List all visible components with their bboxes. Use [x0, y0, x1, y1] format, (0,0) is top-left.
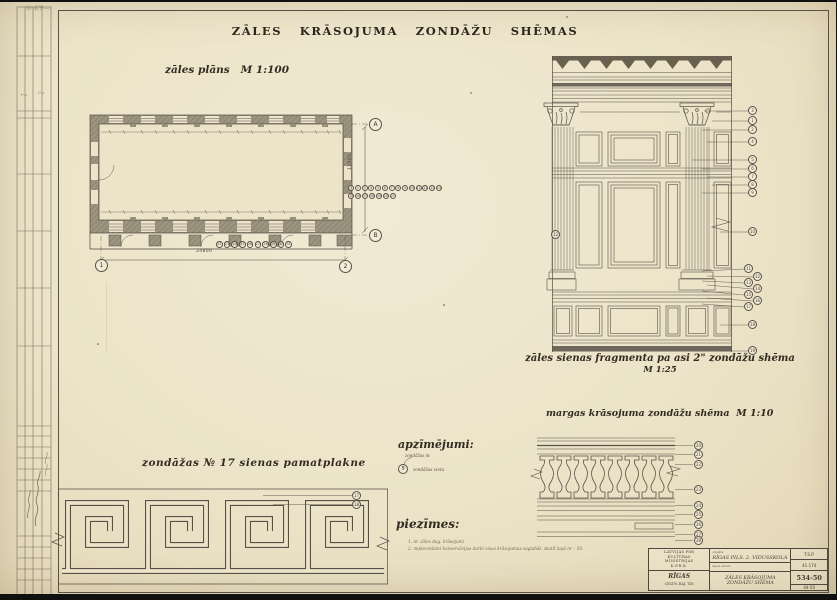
- callout-bubble: 14: [436, 185, 442, 191]
- sheet-title: ZĀLES KRĀSOJUMA ZONDĀŽU SHĒMAS: [210, 24, 600, 38]
- callout-bubble: 1: [748, 116, 757, 125]
- baluster: [557, 456, 571, 498]
- callout-bubble: 1: [348, 185, 354, 191]
- pilaster-shaft-left: [552, 127, 573, 270]
- callout-bubble: 30: [278, 241, 285, 248]
- plan-axis-marker-1: 1: [95, 259, 108, 272]
- callout-bubble: 12: [753, 272, 762, 281]
- callout-bubble: 18: [369, 193, 375, 199]
- signature-squiggle: [28, 490, 31, 518]
- callout-bubble: 2: [748, 125, 757, 134]
- title-block: LATVIJAS PSR KULTŪRAS MINISTRIJAS K.P.R.…: [648, 548, 828, 591]
- tall-panels: [576, 182, 731, 268]
- plinth-lines: [537, 516, 675, 537]
- callout-bubble: 17: [744, 302, 753, 311]
- callout-bubble: 22: [216, 241, 223, 248]
- screenshot-stage: № 4/9— ZĀLES KRĀSOJUMA ZONDĀŽU SHĒMAS zā…: [0, 0, 837, 600]
- callout-bubble: 12: [422, 185, 428, 191]
- callout-bubble: 28: [694, 536, 703, 545]
- callout-bubble: 21: [390, 193, 396, 199]
- callout-bubble: 10: [409, 185, 415, 191]
- note-item: 1. nr. zāles dug. krāsojumi: [408, 539, 464, 544]
- callout-bubble: 6: [382, 185, 388, 191]
- dentils: [556, 61, 723, 70]
- callout-bubble: 8: [395, 185, 401, 191]
- note-item: 2. nepieciešami konservācijas darbi visu…: [408, 546, 583, 551]
- elevation-caption: zāles sienas fragmenta pa asi 2" zondāžu…: [525, 353, 795, 375]
- title-block-object: objekts RĪGAS PILS. 2. VIDUSSKOLA: [710, 549, 790, 563]
- callout-bubble: 3: [362, 185, 368, 191]
- legend-sample-bubble: 5: [398, 464, 408, 474]
- plan-callout-row-2: 15161718192021: [348, 193, 396, 199]
- callout-bubble: 18: [748, 320, 757, 329]
- callout-bubble: 17: [362, 193, 368, 199]
- callout-bubble: 25: [239, 241, 246, 248]
- title-block-sheet-label: lapas saturs: [710, 563, 790, 572]
- plan-axis-marker-b: B: [369, 229, 382, 242]
- corinthian-capital-right: [680, 103, 714, 125]
- callout-bubble: 21: [694, 450, 703, 459]
- callout-bubble: 16: [753, 296, 762, 305]
- callout-bubble: 31: [285, 241, 292, 248]
- callout-bubble: 4: [368, 185, 374, 191]
- title-block-city: RĪGAS CELTN. RAJ. TIN: [649, 571, 709, 590]
- callout-bubble: 15: [744, 290, 753, 299]
- meander-band-drawing: [58, 485, 392, 591]
- callout-bubble: 20: [383, 193, 389, 199]
- callout-bubble: 20: [694, 441, 703, 450]
- callout-bubble: 13: [744, 278, 753, 287]
- plan-height-dimension: 12500: [348, 154, 353, 170]
- title-block-code3: 44-50: [791, 585, 827, 590]
- balustrade-caption: margas krāsojuma zondāžu shēma M 1:10: [546, 408, 773, 419]
- title-block-code1: T.S.P.: [791, 549, 827, 560]
- title-block-drawing-number: 534-50: [791, 571, 827, 585]
- callout-bubble: 14: [753, 284, 762, 293]
- plan-caption: zāles plāns M 1:100: [165, 64, 289, 76]
- meander-caption: zondāžas № 17 sienas pamatplakne: [142, 457, 366, 469]
- baluster: [625, 456, 639, 498]
- title-block-code2: 41-174: [791, 560, 827, 571]
- callout-bubble: 29: [270, 241, 277, 248]
- callout-bubble: 11: [744, 264, 753, 273]
- upper-panels: [576, 132, 731, 166]
- baluster: [591, 456, 605, 498]
- meander-outline: [62, 503, 384, 571]
- callout-bubble: 13: [429, 185, 435, 191]
- callout-bubble: 25: [694, 510, 703, 519]
- notes-heading: piezīmes:: [396, 517, 459, 531]
- paper-speck: [470, 92, 472, 94]
- baluster: [642, 456, 656, 498]
- callout-bubble: 28: [262, 241, 269, 248]
- plan-callout-row-bottom: 22232425262728293031: [216, 241, 292, 248]
- callout-bubble: 7: [389, 185, 395, 191]
- paper-speck: [443, 304, 445, 306]
- callout-bubble: 23: [694, 485, 703, 494]
- callout-bubble: 2: [355, 185, 361, 191]
- title-block-organization: LATVIJAS PSR KULTŪRAS MINISTRIJAS K.P.R.…: [649, 549, 709, 571]
- legend-sample-label: zondāžas vieta: [413, 467, 444, 472]
- callout-bubble: 16: [355, 193, 361, 199]
- callout-bubble: 24: [231, 241, 238, 248]
- title-block-sheet-title: ZĀLES KRĀSOJUMA ZONDĀŽU SHĒMA: [710, 572, 790, 590]
- signature-squiggle: [35, 471, 40, 526]
- plan-axis-marker-2: 2: [339, 260, 352, 273]
- callout-bubble: 27: [255, 241, 262, 248]
- callout-bubble: 18: [352, 500, 361, 509]
- baluster: [608, 456, 622, 498]
- signature-squiggle: [21, 92, 44, 96]
- callout-bubble: 12: [551, 230, 560, 239]
- callout-bubble: 24: [694, 501, 703, 510]
- callout-bubble: 5: [375, 185, 381, 191]
- drawing-sheet: № 4/9— ZĀLES KRĀSOJUMA ZONDĀŽU SHĒMAS zā…: [0, 2, 836, 594]
- callout-bubble: 9: [402, 185, 408, 191]
- legend-heading: apzīmējumi:: [398, 438, 474, 451]
- paper-speck: [566, 16, 568, 18]
- cornice-band: [552, 56, 732, 61]
- callout-leaders: [675, 446, 693, 541]
- callout-bubble: 15: [348, 193, 354, 199]
- dado-panels: [554, 306, 731, 336]
- pilaster-shaft-right: [686, 127, 709, 270]
- callout-bubble: 17: [352, 491, 361, 500]
- callout-bubble: 9: [748, 188, 757, 197]
- callout-bubble: 5: [748, 155, 757, 164]
- callout-bubble: 26: [694, 520, 703, 529]
- paper-speck: [97, 343, 99, 345]
- callout-bubble: 4: [748, 137, 757, 146]
- callout-bubble: 11: [416, 185, 422, 191]
- baluster: [574, 456, 588, 498]
- callout-bubble: 26: [247, 241, 254, 248]
- callout-bubble: 23: [224, 241, 231, 248]
- plan-callout-row-1: 1234567891011121314: [348, 185, 442, 191]
- balustrade-drawing: [535, 432, 715, 550]
- plan-axis-marker-a: A: [369, 118, 382, 131]
- pilaster-bases: [547, 270, 715, 290]
- fold-mark: [106, 282, 107, 354]
- callout-bubble: 19: [376, 193, 382, 199]
- break-mark: [712, 218, 730, 231]
- baluster: [540, 456, 554, 498]
- bottom-rail: [537, 499, 675, 511]
- callout-bubble: 10: [748, 227, 757, 236]
- baluster: [659, 456, 673, 498]
- callout-bubble: 3: [748, 106, 757, 115]
- margin-stamp-strip: [16, 6, 54, 594]
- plan-width-dimension: 24800: [196, 249, 212, 254]
- signature-squiggle: [45, 452, 47, 476]
- callout-bubble: 22: [694, 460, 703, 469]
